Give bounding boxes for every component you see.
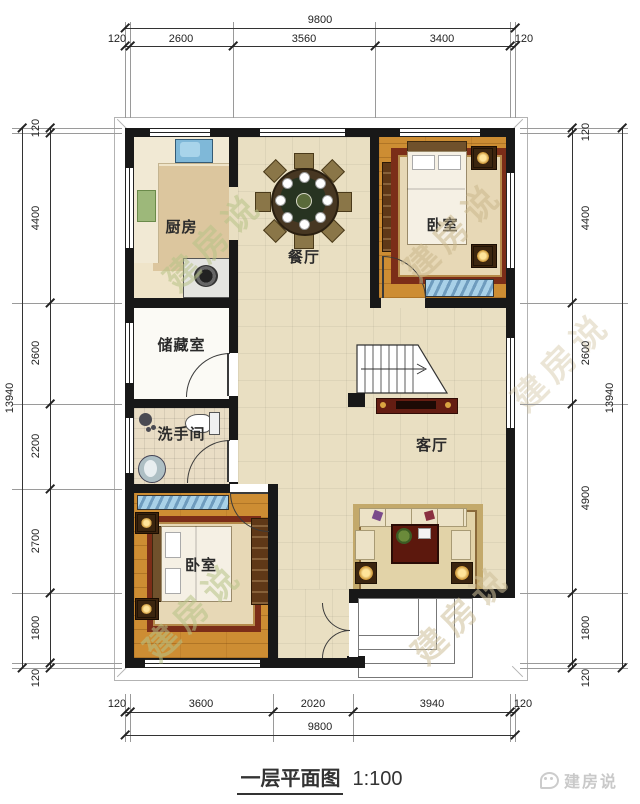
table-centerpiece bbox=[296, 193, 312, 209]
dim-seg: 120 bbox=[508, 698, 538, 710]
extension-line bbox=[12, 128, 122, 129]
door-leaf bbox=[227, 353, 229, 396]
plate bbox=[299, 219, 310, 230]
dim-total-left: 13940 bbox=[4, 376, 16, 420]
dim-seg: 120 bbox=[102, 698, 132, 710]
room-label-dining: 餐厅 bbox=[238, 246, 370, 267]
window bbox=[125, 418, 134, 473]
dim-seg: 120 bbox=[102, 33, 132, 45]
window bbox=[506, 338, 515, 428]
extension-line bbox=[520, 593, 628, 594]
dim-seg: 120 bbox=[30, 106, 42, 150]
window bbox=[400, 128, 480, 137]
lamp bbox=[137, 514, 156, 532]
window bbox=[150, 128, 210, 137]
dim-seg: 3600 bbox=[176, 698, 226, 710]
plate bbox=[322, 195, 333, 206]
extension-line bbox=[12, 133, 122, 134]
extension-line bbox=[12, 663, 122, 664]
title-scale: 1:100 bbox=[352, 768, 402, 790]
dim-seg: 120 bbox=[509, 33, 539, 45]
dim-seg: 4400 bbox=[30, 196, 42, 240]
stove-burner bbox=[194, 265, 218, 287]
extension-line bbox=[12, 404, 122, 405]
dim-seg: 2600 bbox=[30, 331, 42, 375]
dim-seg: 2700 bbox=[30, 519, 42, 563]
dim-total-top: 9800 bbox=[290, 14, 350, 26]
extension-line bbox=[12, 489, 122, 490]
extension-line bbox=[520, 133, 628, 134]
extension-line bbox=[12, 303, 122, 304]
wall bbox=[370, 128, 379, 308]
room-label-storage: 储藏室 bbox=[134, 334, 229, 355]
bay-window bbox=[425, 279, 494, 297]
dim-seg: 4400 bbox=[580, 196, 592, 240]
lamp bbox=[473, 148, 493, 168]
plate bbox=[315, 212, 326, 223]
dim-seg: 1800 bbox=[30, 606, 42, 650]
extension-line bbox=[375, 22, 376, 118]
bed-pillow bbox=[438, 155, 461, 170]
dining-chair bbox=[255, 192, 271, 212]
extension-line bbox=[520, 668, 628, 669]
basin-bowl bbox=[144, 460, 157, 477]
lamp bbox=[137, 600, 156, 618]
flower-decor bbox=[396, 528, 412, 544]
dimension-line bbox=[125, 735, 515, 736]
tv-decor bbox=[445, 402, 451, 408]
dim-total-bottom: 9800 bbox=[290, 721, 350, 733]
brand-logo-text: 建房说 bbox=[564, 768, 618, 792]
room-label-living: 客厅 bbox=[358, 434, 506, 455]
stairs bbox=[356, 344, 448, 394]
bay-window bbox=[137, 495, 229, 510]
dim-seg: 2200 bbox=[30, 424, 42, 468]
window bbox=[260, 128, 345, 137]
plate bbox=[282, 178, 293, 189]
title-text: 一层平面图 bbox=[237, 768, 343, 795]
dim-seg: 2020 bbox=[288, 698, 338, 710]
armchair bbox=[451, 530, 471, 560]
floor-lamp bbox=[451, 562, 473, 584]
dimension-line bbox=[125, 28, 515, 29]
extension-line bbox=[520, 303, 628, 304]
dim-seg: 120 bbox=[30, 656, 42, 700]
plate bbox=[282, 212, 293, 223]
wall bbox=[358, 589, 515, 598]
window bbox=[125, 168, 134, 248]
dim-total-right: 13940 bbox=[604, 376, 616, 420]
dimension-line bbox=[125, 46, 515, 47]
dim-seg: 2600 bbox=[156, 33, 206, 45]
wall bbox=[268, 484, 278, 668]
bed-foldline bbox=[407, 188, 465, 190]
room-label-bedroom-bottom: 卧室 bbox=[134, 554, 268, 575]
window bbox=[145, 659, 260, 668]
plate bbox=[275, 195, 286, 206]
door-leaf bbox=[382, 256, 384, 298]
lamp bbox=[473, 246, 493, 266]
speech-bubble-icon bbox=[540, 772, 559, 789]
storage-doorway bbox=[229, 353, 238, 396]
door-leaf bbox=[227, 440, 229, 482]
room-label-bathroom: 洗手间 bbox=[134, 423, 229, 444]
tv bbox=[396, 401, 436, 409]
floor-lamp bbox=[355, 562, 377, 584]
dining-chair bbox=[294, 153, 314, 169]
door-leaf bbox=[230, 492, 268, 494]
plate bbox=[299, 172, 310, 183]
bed-pillow bbox=[412, 155, 435, 170]
brand-logo: 建房说 bbox=[540, 768, 618, 792]
wall bbox=[125, 298, 238, 308]
wall bbox=[229, 128, 238, 493]
dim-seg: 3560 bbox=[279, 33, 329, 45]
dimension-line bbox=[572, 128, 573, 668]
extension-line bbox=[233, 22, 234, 118]
kitchen-doorway bbox=[229, 187, 238, 240]
dim-seg: 3400 bbox=[417, 33, 467, 45]
tv-decor bbox=[380, 402, 386, 408]
window bbox=[125, 323, 134, 383]
porch-landing bbox=[358, 598, 419, 636]
kitchen-sink-basin bbox=[180, 142, 200, 157]
dimension-line bbox=[622, 128, 623, 668]
dimension-line bbox=[22, 128, 23, 668]
dimension-line bbox=[125, 712, 515, 713]
dim-seg: 1800 bbox=[580, 606, 592, 650]
extension-line bbox=[12, 593, 122, 594]
wall bbox=[125, 399, 238, 408]
room-label-bedroom-top: 卧室 bbox=[379, 214, 506, 235]
dimension-line bbox=[50, 128, 51, 668]
armchair bbox=[355, 530, 375, 560]
floorplan-page: { "title": {"main": "一层平面图", "scale": "1… bbox=[0, 0, 640, 804]
room-label-kitchen: 厨房 bbox=[134, 216, 229, 237]
entry-doorway bbox=[349, 603, 358, 657]
dim-seg: 120 bbox=[580, 656, 592, 700]
floor-plan: 厨房 餐厅 卧室 储藏室 洗手间 客厅 卧室 bbox=[125, 128, 515, 668]
window bbox=[506, 173, 515, 268]
dim-seg: 2600 bbox=[580, 331, 592, 375]
dim-seg: 120 bbox=[580, 110, 592, 154]
extension-line bbox=[12, 668, 122, 669]
stair-pillar bbox=[348, 393, 365, 407]
bedroom-top-doorway bbox=[381, 298, 425, 308]
dim-seg: 4900 bbox=[580, 476, 592, 520]
dim-seg: 3940 bbox=[407, 698, 457, 710]
plate bbox=[315, 178, 326, 189]
bathroom-doorway bbox=[229, 440, 238, 482]
table-item bbox=[418, 528, 431, 539]
